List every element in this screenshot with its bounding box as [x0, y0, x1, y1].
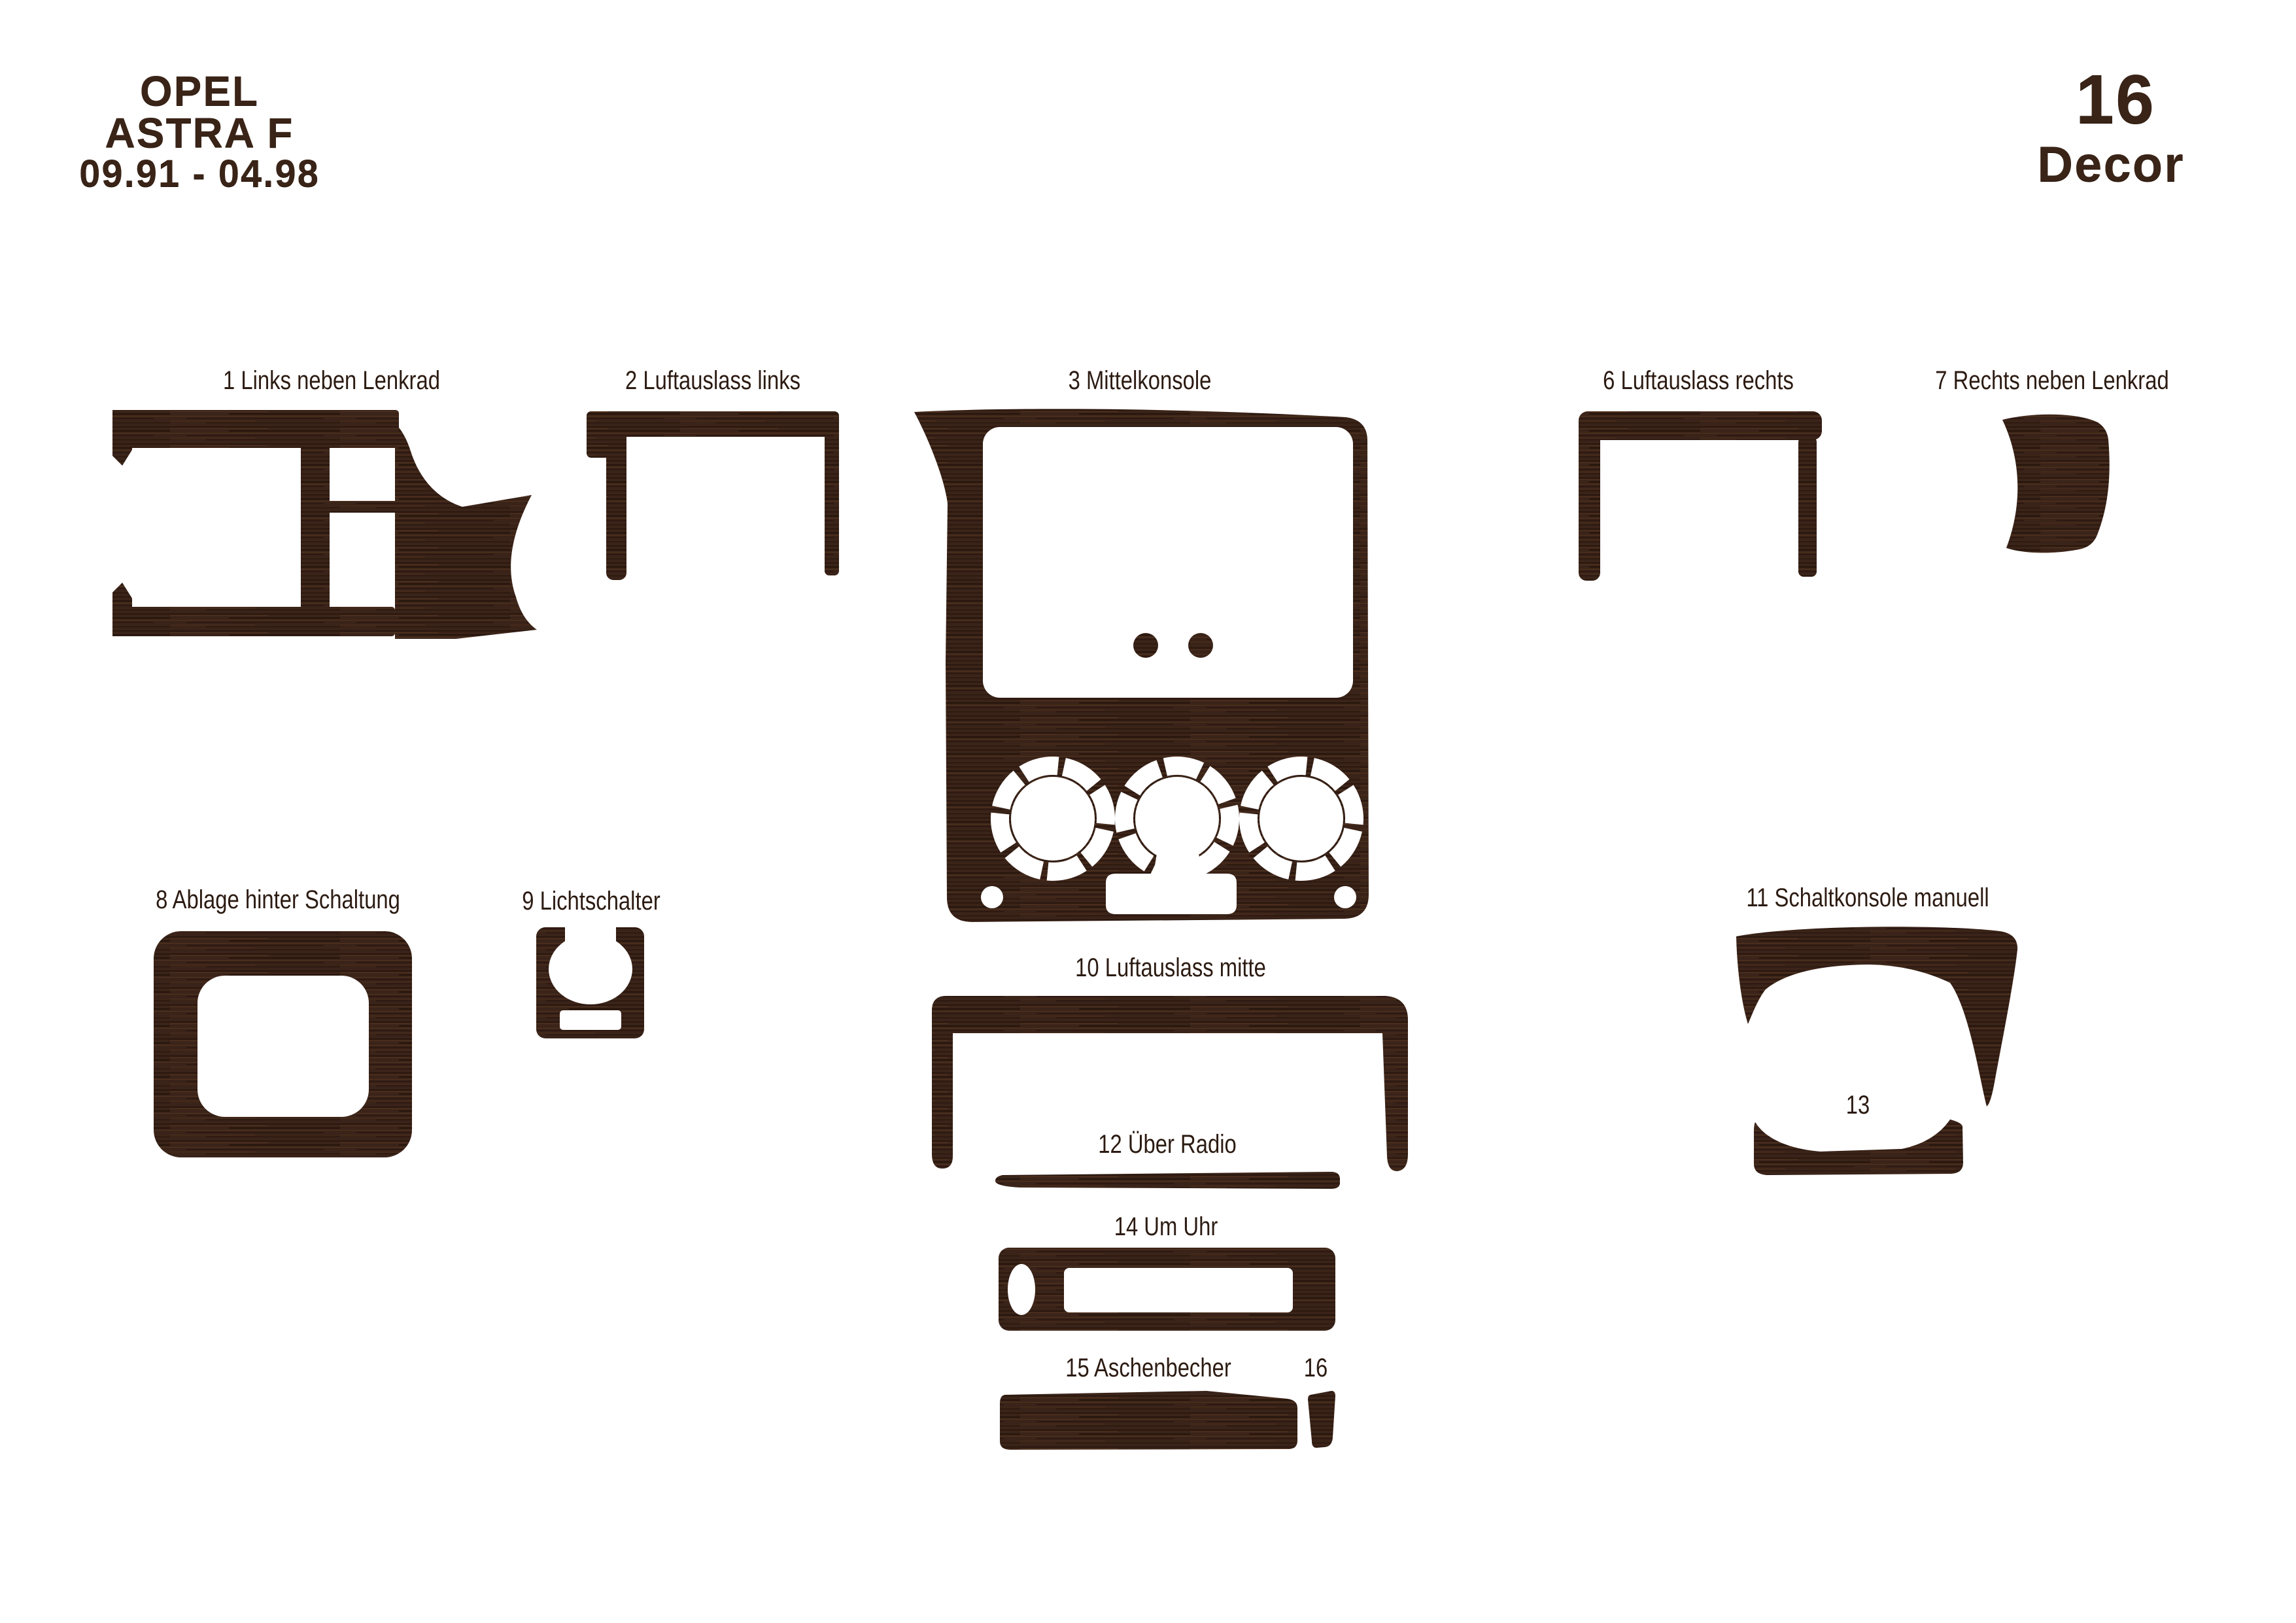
insert-dot-5: [1188, 633, 1213, 658]
part-12-above-radio-strip-shape: [995, 1172, 1340, 1189]
console-window-cutout: [983, 427, 1353, 698]
switch-round-cutout: [549, 934, 632, 1004]
part-10-middle-air-vent-shape: [932, 996, 1408, 1171]
part-9-light-switch-panel-shape: [536, 923, 644, 1038]
part-16-small-piece-shape: [1308, 1391, 1335, 1448]
part-1-left-of-steering-wheel-shape: [112, 410, 537, 639]
part-8-storage-tray-frame-shape: [154, 931, 412, 1157]
part-14-clock-surround-shape: [999, 1248, 1335, 1331]
console-screw-hole-left: [981, 886, 1003, 908]
part-11-shift-console-shape: [1736, 927, 2017, 1106]
clock-oval-cutout: [1008, 1264, 1035, 1315]
part-13-shift-console-lower-strip-shape: [1754, 1119, 1963, 1175]
part-3-center-console-shape: [914, 409, 1369, 922]
part-6-right-air-vent-shape: [1579, 411, 1822, 581]
parts-drawing: [0, 0, 2296, 1623]
part-15-ashtray-strip-shape: [1000, 1391, 1297, 1450]
clock-rect-cutout: [1064, 1268, 1293, 1312]
part-2-left-air-vent-shape: [587, 411, 839, 580]
console-screw-hole-right: [1334, 886, 1356, 908]
part-7-right-of-steering-wheel-shape: [2002, 415, 2110, 553]
diagram-page: OPEL ASTRA F 09.91 - 04.98 16 Decor 1 Li…: [0, 0, 2296, 1623]
switch-rect-cutout: [560, 1010, 621, 1030]
insert-dot-4: [1133, 633, 1158, 658]
tray-frame-cutout: [197, 976, 369, 1117]
